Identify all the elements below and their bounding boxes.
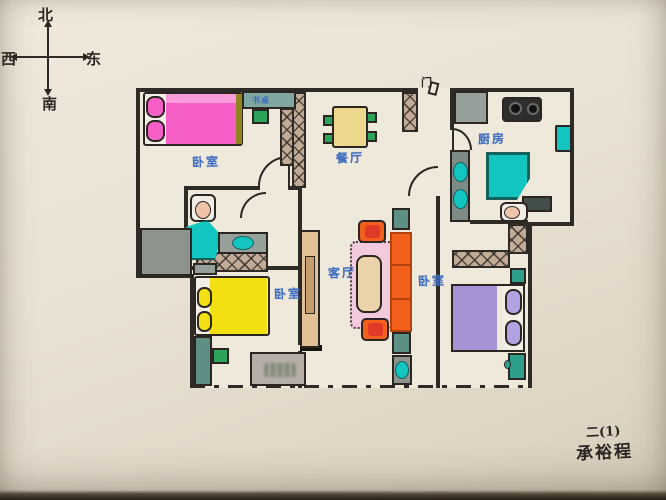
dining-chair-4 (366, 131, 377, 142)
bedroom-se-label: 卧室 (418, 272, 447, 290)
compass-vertical-axis (47, 26, 49, 90)
planter-pot (395, 361, 409, 379)
cabinet-stamped (250, 352, 306, 386)
bed-sheet-fold-nw (166, 94, 236, 103)
floor-plan-photo: 北 东 南 西 门 (0, 0, 666, 500)
stove-burner-1 (509, 102, 522, 115)
cabinet-stamp-mark (264, 363, 296, 377)
nightstand-knob (504, 360, 511, 369)
dining-chair-2 (323, 133, 334, 144)
wall-bedroom-nw-south-a (184, 186, 260, 190)
wardrobe-hatch-bedroom-se (452, 250, 510, 268)
fridge (555, 125, 572, 152)
wall-east-lower (528, 222, 532, 388)
shelf-sw (193, 263, 217, 275)
desk-nw-label: 书桌 (252, 95, 270, 106)
toilet-2-seat (504, 206, 520, 219)
toilet-1-seat (195, 201, 211, 219)
sofa-main (390, 232, 412, 332)
living-label: 客厅 (328, 264, 357, 282)
wall-hatch-bath2 (508, 224, 528, 254)
armchair-bottom-cushion (368, 323, 383, 336)
desk-nw: 书桌 (242, 91, 296, 109)
dining-chair-1 (323, 115, 334, 126)
bed-blanket-sw (210, 278, 267, 334)
pillow-se-2 (505, 320, 522, 346)
compass-south-label: 南 (42, 93, 57, 114)
kitchen-label: 厨房 (478, 130, 507, 148)
signature-name: 承裕程 (575, 437, 633, 465)
sofa-seam-1 (391, 264, 411, 266)
pillow-sw-2 (197, 311, 212, 332)
pillow-nw-2 (146, 120, 165, 142)
desk-chair-sw (212, 348, 229, 364)
wall-south-windowed (190, 385, 532, 388)
pillow-sw-1 (197, 287, 212, 308)
dining-chair-3 (366, 112, 377, 123)
dining-label: 餐厅 (336, 149, 365, 167)
desk-chair-nw (252, 109, 269, 124)
pillar-hatch-dining (402, 92, 418, 132)
wall-bedroom-se-west (436, 196, 440, 388)
compass-horizontal-axis (16, 56, 84, 58)
wardrobe-grey-west (140, 228, 192, 276)
bed-blanket-se (453, 286, 497, 350)
bed-sheet-fold-se (497, 286, 503, 350)
compass-east-label: 东 (86, 48, 101, 69)
bedroom-sw-label: 卧室 (274, 285, 303, 303)
sofa-seam-2 (391, 298, 411, 300)
vanity-basin-2 (453, 189, 468, 209)
dining-table (332, 106, 368, 148)
bedroom-nw-label: 卧室 (192, 153, 221, 171)
nightstand-se-bottom (508, 353, 526, 380)
stove-burner-2 (527, 103, 539, 115)
nightstand-se-top (510, 268, 526, 284)
kitchen-counter (454, 91, 488, 124)
coffee-table (356, 255, 382, 313)
side-table-north (392, 208, 410, 230)
armchair-top-cushion (365, 225, 380, 238)
sink-basin-1 (232, 236, 254, 250)
wall-east-upper (570, 88, 574, 226)
pillow-nw-1 (146, 96, 165, 118)
door-leaf-kitchen (452, 128, 454, 150)
desk-sw (194, 336, 212, 386)
compass-north-label: 北 (38, 4, 53, 25)
photo-bottom-edge (0, 490, 666, 500)
tv (305, 256, 315, 314)
side-table-south (392, 332, 411, 354)
wall-east-step (528, 222, 574, 226)
vanity-counter (450, 150, 470, 222)
pillow-se-1 (505, 289, 522, 315)
vanity-basin-1 (453, 162, 468, 182)
compass-west-label: 西 (1, 48, 16, 69)
